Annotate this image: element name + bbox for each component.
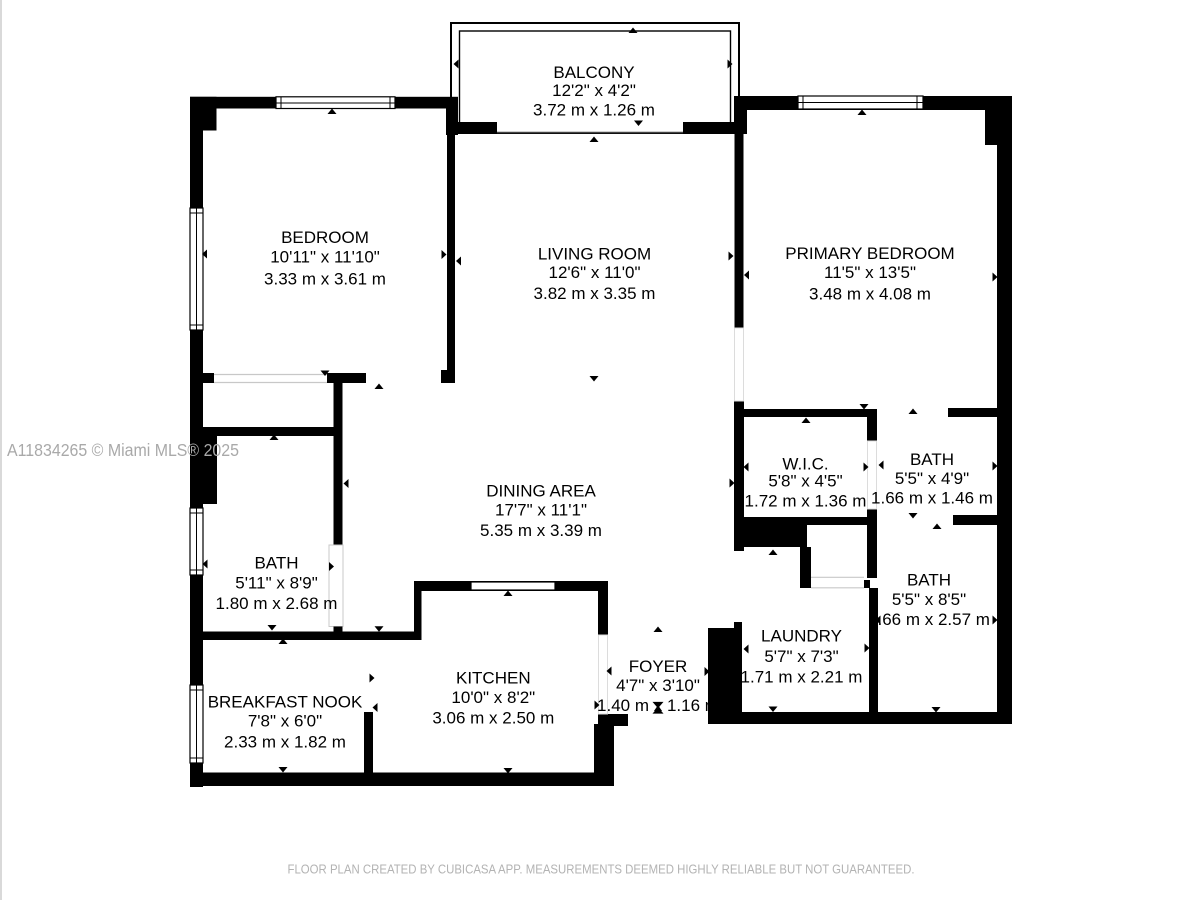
- svg-text:BATH: BATH: [907, 571, 951, 590]
- svg-text:1.72 m x 1.36 m: 1.72 m x 1.36 m: [745, 492, 867, 511]
- svg-text:12'2" x 4'2": 12'2" x 4'2": [552, 81, 636, 100]
- svg-text:BATH: BATH: [254, 554, 298, 573]
- svg-text:3.33 m x 3.61 m: 3.33 m x 3.61 m: [264, 269, 386, 288]
- svg-text:3.82 m x 3.35 m: 3.82 m x 3.35 m: [534, 284, 656, 303]
- svg-text:5'8" x 4'5": 5'8" x 4'5": [768, 472, 842, 491]
- svg-text:2.33 m x 1.82 m: 2.33 m x 1.82 m: [224, 732, 346, 751]
- svg-text:DINING AREA: DINING AREA: [486, 482, 596, 501]
- svg-text:FOYER: FOYER: [629, 657, 688, 676]
- svg-text:1.66 m x 1.46 m: 1.66 m x 1.46 m: [871, 489, 993, 508]
- svg-text:PRIMARY BEDROOM: PRIMARY BEDROOM: [785, 244, 954, 263]
- svg-text:11'5" x 13'5": 11'5" x 13'5": [824, 263, 916, 282]
- svg-text:12'6" x 11'0": 12'6" x 11'0": [549, 263, 641, 282]
- svg-text:LIVING ROOM: LIVING ROOM: [538, 244, 651, 263]
- svg-text:BEDROOM: BEDROOM: [281, 228, 369, 247]
- svg-text:1.40 m x 1.16 m: 1.40 m x 1.16 m: [597, 696, 719, 715]
- svg-text:10'0" x 8'2": 10'0" x 8'2": [451, 688, 535, 707]
- svg-text:1.80 m x 2.68 m: 1.80 m x 2.68 m: [216, 594, 338, 613]
- svg-text:17'7" x 11'1": 17'7" x 11'1": [495, 500, 587, 519]
- svg-text:FLOOR PLAN CREATED BY CUBICASA: FLOOR PLAN CREATED BY CUBICASA APP. MEAS…: [288, 862, 915, 877]
- svg-text:3.48 m x 4.08 m: 3.48 m x 4.08 m: [809, 285, 931, 304]
- svg-text:5'11" x 8'9": 5'11" x 8'9": [235, 574, 318, 593]
- svg-text:A11834265 © Miami MLS® 2025: A11834265 © Miami MLS® 2025: [7, 440, 239, 460]
- svg-text:10'11" x 11'10": 10'11" x 11'10": [270, 247, 380, 266]
- svg-text:5.35 m x 3.39 m: 5.35 m x 3.39 m: [480, 521, 602, 540]
- svg-text:KITCHEN: KITCHEN: [456, 669, 531, 688]
- svg-text:4'7" x 3'10": 4'7" x 3'10": [616, 676, 700, 695]
- svg-text:W.I.C.: W.I.C.: [782, 454, 828, 473]
- svg-text:3.06 m x 2.50 m: 3.06 m x 2.50 m: [432, 708, 554, 727]
- svg-text:5'5" x 4'9": 5'5" x 4'9": [895, 469, 969, 488]
- svg-text:BATH: BATH: [910, 450, 954, 469]
- svg-text:BALCONY: BALCONY: [553, 63, 634, 82]
- svg-text:3.72 m x 1.26 m: 3.72 m x 1.26 m: [533, 101, 655, 120]
- svg-text:5'5" x 8'5": 5'5" x 8'5": [892, 590, 966, 609]
- svg-text:7'8" x 6'0": 7'8" x 6'0": [248, 711, 322, 730]
- svg-text:1.71 m x 2.21 m: 1.71 m x 2.21 m: [741, 667, 863, 686]
- svg-text:LAUNDRY: LAUNDRY: [761, 626, 842, 645]
- svg-text:5'7" x 7'3": 5'7" x 7'3": [764, 647, 838, 666]
- svg-text:1.66 m x 2.57 m: 1.66 m x 2.57 m: [868, 610, 990, 629]
- svg-text:BREAKFAST NOOK: BREAKFAST NOOK: [208, 693, 363, 712]
